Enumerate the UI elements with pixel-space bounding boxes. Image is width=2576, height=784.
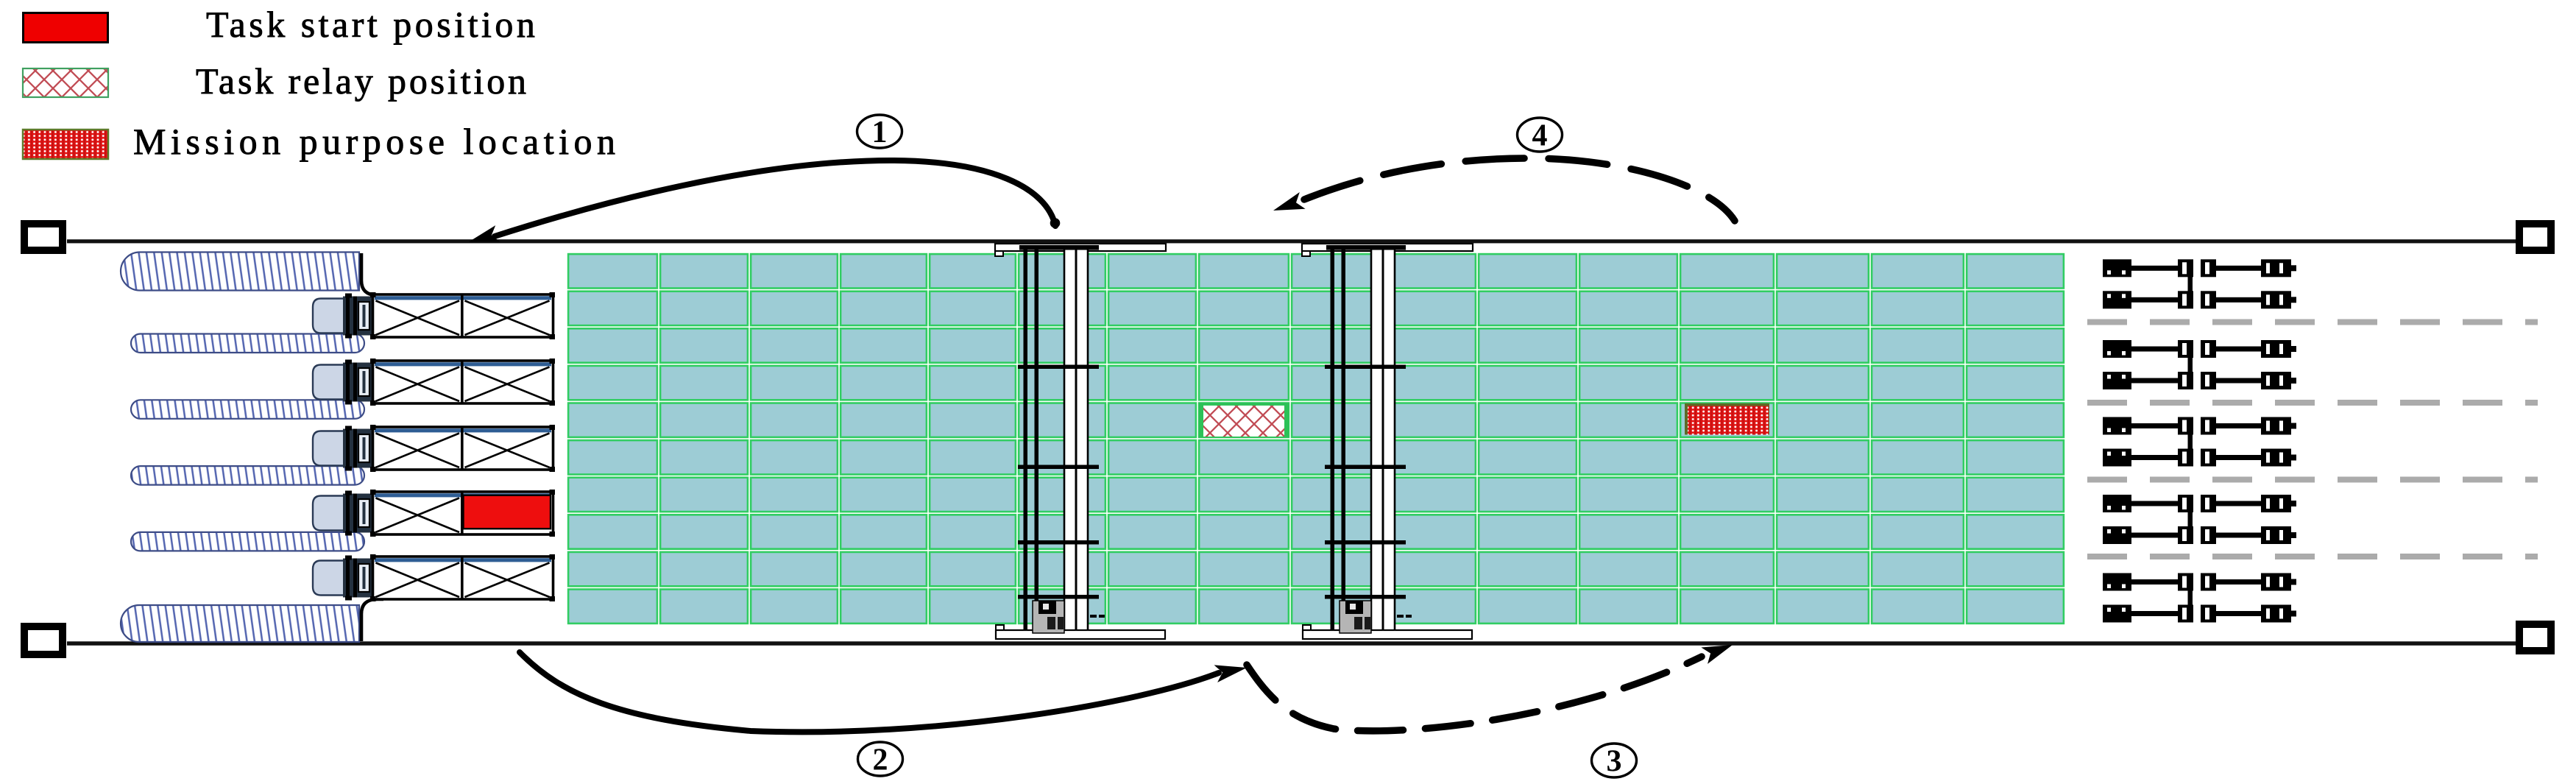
- svg-text:Task relay position: Task relay position: [196, 60, 529, 102]
- svg-text:Task start position: Task start position: [206, 4, 538, 45]
- svg-text:2: 2: [873, 744, 888, 777]
- svg-text:1: 1: [872, 116, 888, 149]
- svg-text:3: 3: [1607, 745, 1622, 779]
- svg-text:Mission purpose location: Mission purpose location: [133, 121, 620, 162]
- svg-text:4: 4: [1532, 119, 1548, 153]
